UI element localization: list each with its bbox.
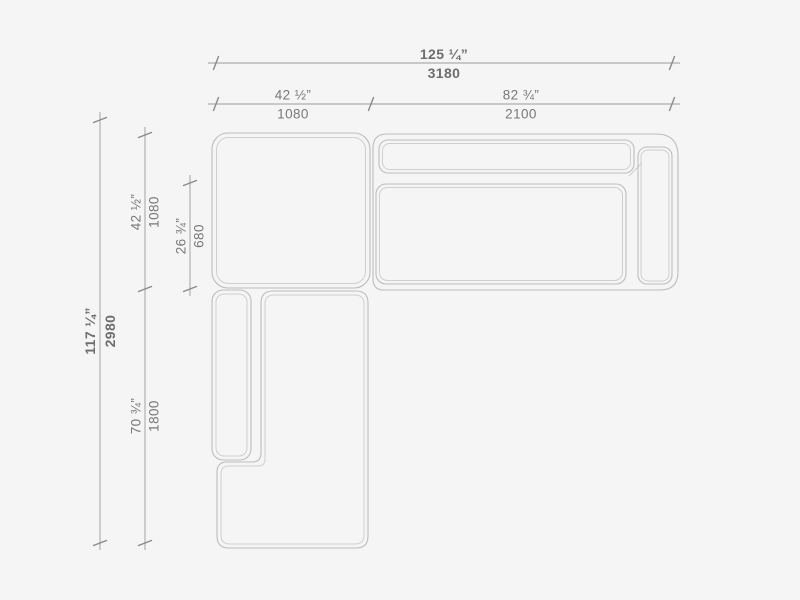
dim-left-lower-mm: 1800 — [147, 400, 162, 432]
dim-left-upper-mm: 1080 — [147, 196, 162, 228]
sofa-dimension-drawing: 125 ¼” 3180 42 ½” 1080 82 ¾” 2100 117 ¼”… — [0, 0, 800, 600]
dimension-line-left-segments — [139, 127, 152, 550]
dim-top-right-inches: 82 ¾” — [503, 88, 540, 103]
sofa-plan-svg — [0, 0, 800, 600]
dim-left-total-mm: 2980 — [102, 315, 118, 348]
dim-top-total-inches: 125 ¼” — [420, 46, 468, 62]
dim-top-left-mm: 1080 — [277, 107, 309, 122]
dim-top-right-mm: 2100 — [505, 107, 537, 122]
dim-left-inner-mm: 680 — [192, 224, 207, 248]
dim-left-total-inches: 117 ¼” — [82, 307, 98, 355]
backrest-miter-seam — [629, 163, 642, 176]
dim-left-inner-inches: 26 ¾” — [174, 218, 189, 255]
dim-left-upper-inches: 42 ½” — [129, 194, 144, 231]
dim-top-total-mm: 3180 — [428, 65, 461, 81]
dim-top-left-inches: 42 ½” — [275, 88, 312, 103]
dim-left-lower-inches: 70 ¾” — [129, 398, 144, 435]
sofa-module-outline — [373, 134, 678, 290]
chaise-module-outline — [212, 290, 368, 548]
ottoman-module-outline — [212, 133, 370, 288]
